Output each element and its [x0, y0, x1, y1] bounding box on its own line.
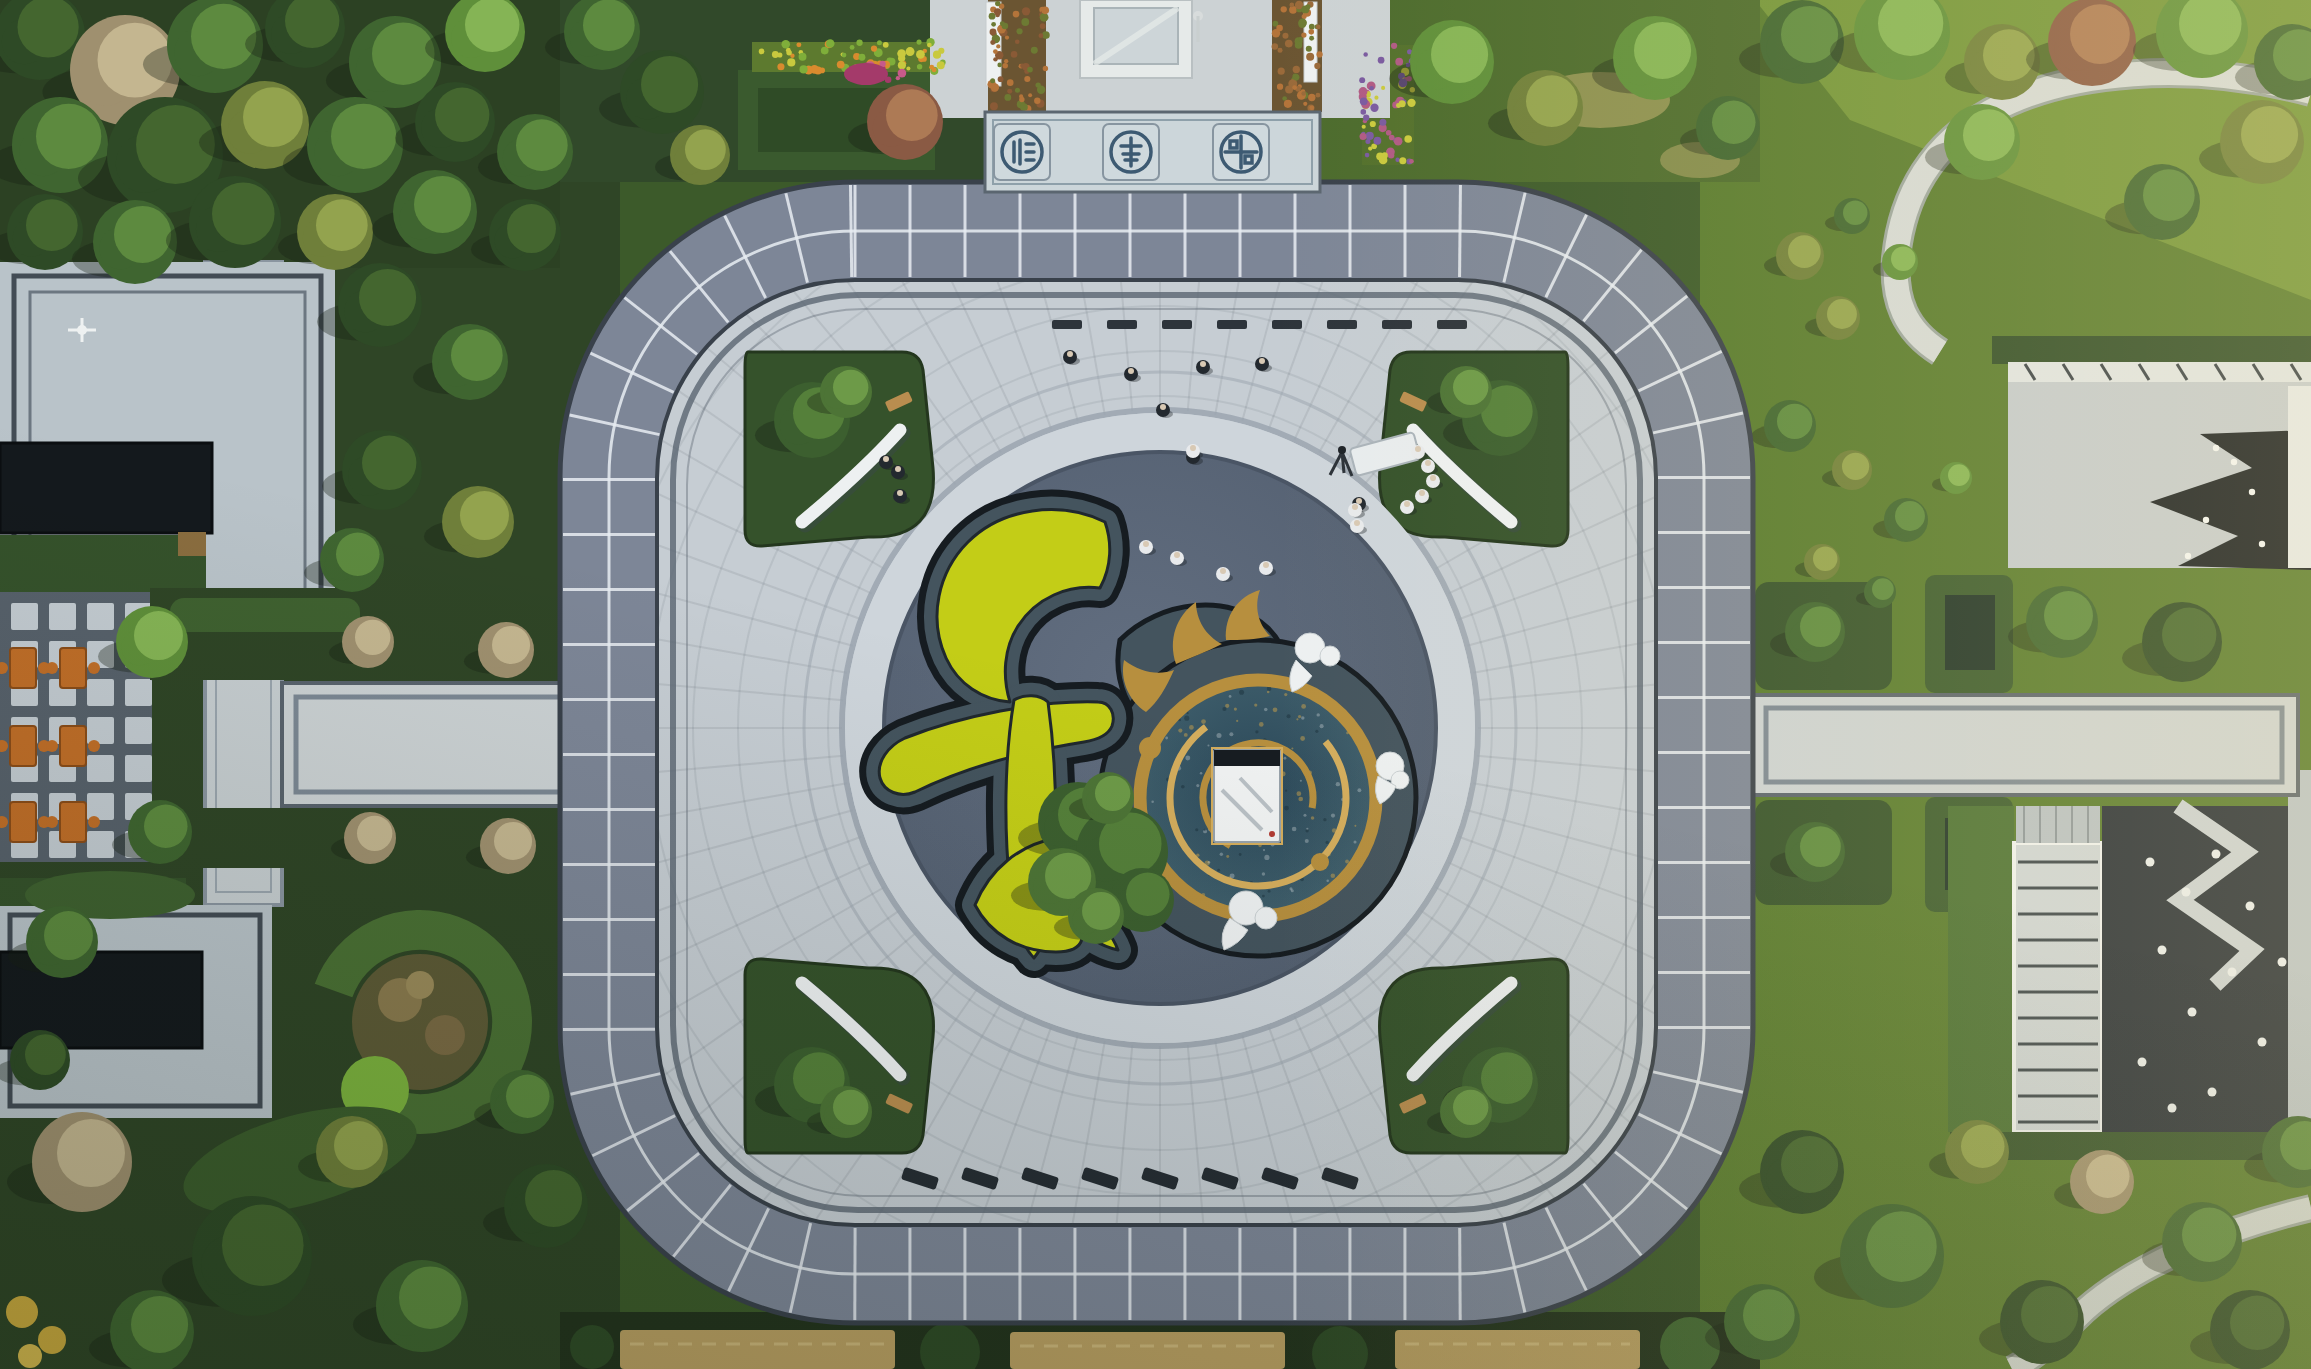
- screenshot-stage: Aerial drone view of a landscaped reside…: [0, 0, 2311, 1369]
- aerial-photo: [0, 0, 2311, 1369]
- shade-overlay: [0, 0, 2311, 1369]
